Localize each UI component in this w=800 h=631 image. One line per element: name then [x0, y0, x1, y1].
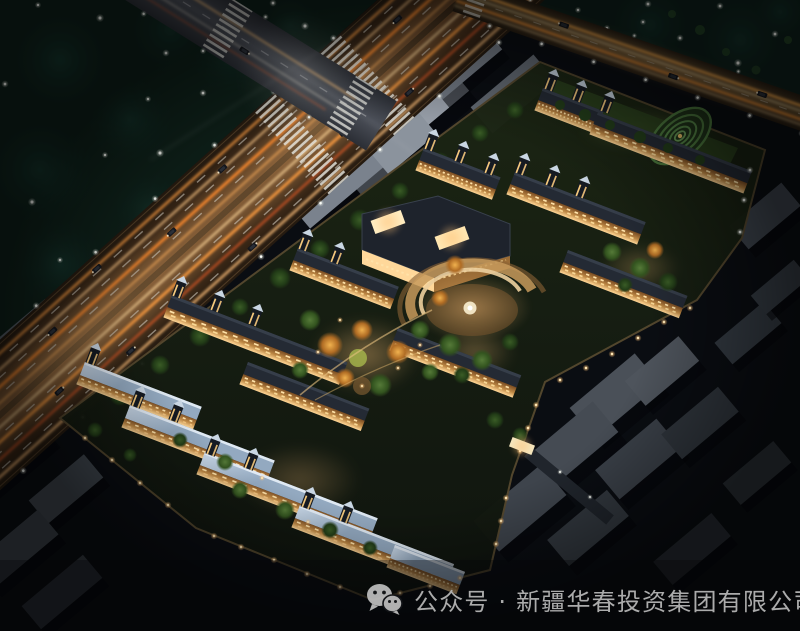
watermark-text: 公众号 · 新疆华春投资集团有限公司	[414, 582, 800, 617]
vignette	[0, 0, 800, 631]
watermark: 公众号 · 新疆华春投资集团有限公司	[366, 582, 800, 617]
wechat-icon	[366, 583, 403, 616]
aerial-night-rendering: 公众号 · 新疆华春投资集团有限公司	[0, 0, 800, 631]
night-aerial-scene	[0, 0, 800, 631]
